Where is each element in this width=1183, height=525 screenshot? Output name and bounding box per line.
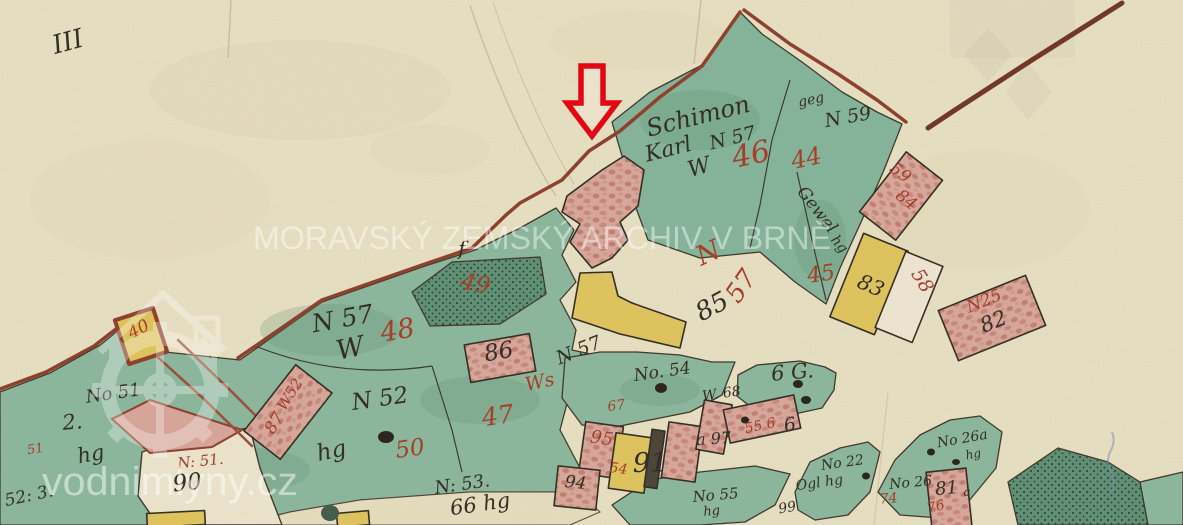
site-watermark-text: vodnimlyny.cz: [42, 460, 298, 504]
scanned-cadastral-map: III Schimon Karl N 57 W 46 geg N 59 44 G…: [0, 0, 1183, 525]
map-canvas: III Schimon Karl N 57 W 46 geg N 59 44 G…: [0, 0, 1183, 525]
archive-watermark-text: MORAVSKÝ ZEMSKÝ ARCHIV V BRNĚ: [253, 220, 831, 256]
